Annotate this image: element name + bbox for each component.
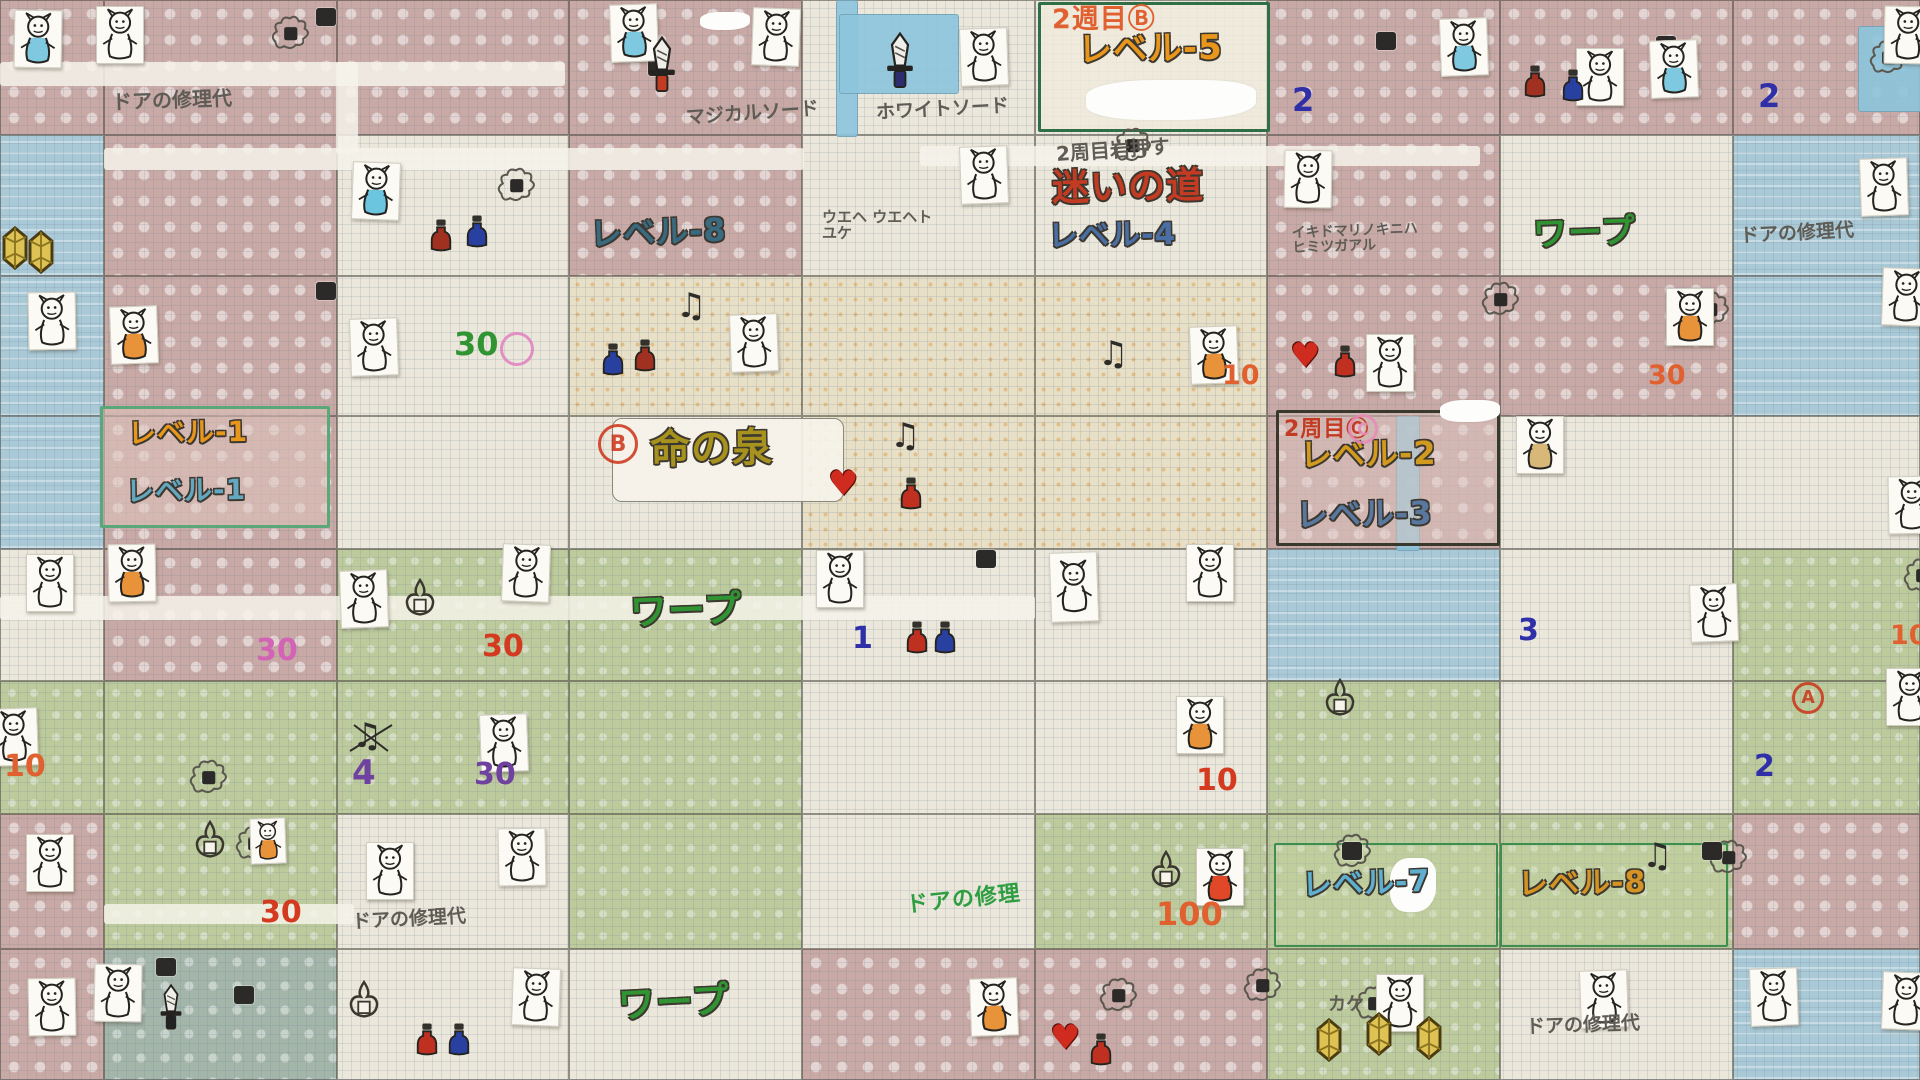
fire-icon <box>1148 850 1184 894</box>
monster-sticker <box>339 569 389 629</box>
potion-icon <box>900 476 922 514</box>
price-number: 30 <box>1648 362 1686 389</box>
screen-cell-r4c6 <box>1267 549 1500 681</box>
map-label: レベル-1 <box>126 475 247 506</box>
whiteout-patch <box>1086 80 1256 120</box>
screen-cell-r3c2 <box>337 416 569 549</box>
crystal-icon <box>1314 1018 1344 1066</box>
potion-icon <box>430 218 452 256</box>
screen-cell-r3c0 <box>0 416 104 549</box>
map-label: イキドマリノキニハ ヒミツガアル <box>1292 222 1419 256</box>
monster-sticker <box>1186 544 1234 602</box>
monster-sticker <box>26 554 74 612</box>
music-note-icon: ♫ <box>1642 836 1672 876</box>
fire-icon <box>1322 678 1358 722</box>
magical-sword <box>646 36 678 98</box>
price-number: 30 <box>260 898 302 928</box>
screen-cell-r2c4 <box>802 276 1035 416</box>
monster-sticker <box>1283 150 1332 209</box>
monster-sticker <box>27 292 76 351</box>
potion-icon <box>448 1022 470 1060</box>
hand-drawn-overworld-map: ♫♫♫♫♫♥♥♥ ドアの修理代マジカルソードホワイトソード2週目Ⓑレベル-522… <box>0 0 1920 1080</box>
price-number: 2 <box>1754 752 1775 782</box>
screen-cell-r7c5 <box>1035 949 1267 1080</box>
map-label: ウエヘ ウエヘト ユケ <box>822 210 932 242</box>
map-label: レベル-3 <box>1296 497 1433 533</box>
monster-sticker <box>249 817 287 864</box>
price-number: 30 <box>454 328 499 360</box>
stamp-circle: A <box>1792 682 1824 714</box>
monster-sticker <box>26 834 74 892</box>
dungeon-door <box>234 986 254 1004</box>
heart-container-icon: ♥ <box>1290 336 1320 376</box>
monster-sticker <box>1689 583 1739 643</box>
monster-sticker <box>1516 416 1564 474</box>
map-label: レベル-5 <box>1078 31 1223 69</box>
stamp-circle: B <box>598 424 638 464</box>
crystal-icon <box>1364 1012 1394 1060</box>
monster-sticker <box>959 145 1009 205</box>
price-number: 10 <box>1222 362 1260 389</box>
price-number: 100 <box>1156 898 1223 930</box>
monster-sticker <box>511 967 561 1027</box>
screen-cell-r5c4 <box>802 681 1035 814</box>
white-sword <box>884 32 916 94</box>
monster-sticker <box>1439 17 1489 77</box>
dungeon-door <box>316 282 336 300</box>
path-band <box>104 904 354 924</box>
monster-sticker <box>107 544 156 603</box>
monster-sticker <box>96 6 144 64</box>
potion-icon <box>906 620 928 658</box>
map-label: レベル-8 <box>1518 867 1647 901</box>
screen-cell-r1c7 <box>1500 135 1733 276</box>
monster-sticker <box>349 317 399 377</box>
potion-icon <box>1334 344 1356 382</box>
map-label: カケ <box>1328 996 1364 1015</box>
monster-sticker <box>1881 267 1920 327</box>
map-label: 命の泉 <box>650 427 774 471</box>
music-note-icon: ♫ <box>676 286 706 326</box>
price-number: 10 <box>1890 622 1920 649</box>
potion-icon <box>1524 64 1546 102</box>
crystal-icon <box>26 230 56 278</box>
price-number: 30 <box>474 760 516 790</box>
price-number: 30 <box>482 632 524 662</box>
monster-sticker <box>1366 334 1414 392</box>
monster-sticker <box>351 161 401 221</box>
potion-icon <box>934 620 956 658</box>
crystal-icon <box>1414 1016 1444 1064</box>
price-number: 10 <box>4 752 46 782</box>
dungeon-door <box>156 958 176 976</box>
screen-cell-r4c8 <box>1733 549 1920 681</box>
price-number: 30 <box>256 636 298 666</box>
map-label: 2 <box>1292 84 1315 118</box>
price-number: 1 <box>852 624 873 654</box>
map-label: レベル-7 <box>1301 866 1430 902</box>
stamp-circle: C <box>1348 414 1378 444</box>
dungeon-door <box>316 8 336 26</box>
secret-cave-doodle <box>1096 976 1140 1018</box>
monster-sticker <box>27 978 76 1037</box>
secret-cave-doodle <box>1900 556 1920 598</box>
map-label: レベル-8 <box>589 214 727 252</box>
monster-sticker <box>969 977 1019 1037</box>
path-band <box>104 148 804 170</box>
map-label: レベル-4 <box>1048 219 1177 253</box>
path-band <box>336 62 358 154</box>
screen-cell-r5c7 <box>1500 681 1733 814</box>
map-label: 2 <box>1758 80 1781 114</box>
monster-sticker <box>1886 668 1920 726</box>
monster-sticker <box>1749 967 1799 1027</box>
dungeon-door <box>1342 842 1362 860</box>
secret-cave-doodle <box>1478 280 1522 322</box>
monster-sticker <box>1859 157 1909 217</box>
monster-sticker <box>1649 39 1699 99</box>
monster-sticker <box>497 828 546 887</box>
potion-icon <box>466 214 488 252</box>
monster-sticker <box>1887 476 1920 535</box>
monster-sticker <box>959 27 1009 87</box>
screen-cell-r6c3 <box>569 814 802 949</box>
price-number: 10 <box>1196 766 1238 796</box>
music-note-icon: ♫ <box>1098 334 1128 374</box>
monster-sticker <box>1883 6 1920 65</box>
screen-cell-r6c4 <box>802 814 1035 949</box>
monster-sticker <box>366 842 414 900</box>
monster-sticker <box>729 313 779 373</box>
fire-icon <box>402 578 438 622</box>
monster-sticker <box>93 964 142 1023</box>
monster-sticker <box>1666 288 1714 346</box>
secret-cave-doodle <box>1240 966 1284 1008</box>
screen-cell-r5c6 <box>1267 681 1500 814</box>
map-label: 迷いの道 <box>1052 167 1205 208</box>
screen-cell-r6c8 <box>1733 814 1920 949</box>
map-label: ドアの修理代 <box>1526 1014 1641 1038</box>
fire-icon <box>346 980 382 1024</box>
potion-icon <box>1090 1032 1112 1070</box>
price-number: 4 <box>352 756 376 790</box>
path-band <box>0 62 565 86</box>
map-label: ワープ <box>1532 214 1636 253</box>
secret-cave-doodle <box>186 758 230 800</box>
potion-icon <box>1562 68 1584 106</box>
dungeon-door <box>1702 842 1722 860</box>
monster-sticker <box>1176 696 1224 754</box>
monster-sticker <box>1881 971 1920 1031</box>
monster-sticker <box>501 543 551 603</box>
stamp-circle <box>500 332 534 366</box>
monster-sticker <box>109 305 159 365</box>
music-note-icon: ♫ <box>890 416 920 456</box>
monster-sticker <box>751 7 801 67</box>
dungeon-door <box>1376 32 1396 50</box>
fire-icon <box>192 820 228 864</box>
map-label: ドアの修理代 <box>112 88 233 113</box>
whiteout-patch <box>1440 400 1500 422</box>
potion-icon <box>634 338 656 376</box>
potion-icon <box>602 342 624 380</box>
map-label: レベル-1 <box>128 417 249 448</box>
secret-cave-doodle <box>268 14 312 56</box>
monster-sticker <box>1049 551 1099 623</box>
heart-container-icon: ♥ <box>1050 1018 1080 1058</box>
black-sword <box>158 984 184 1035</box>
price-number: 3 <box>1518 616 1539 646</box>
music-note-crossed-icon: ♫ <box>352 716 382 756</box>
map-label: ワープ <box>617 981 731 1026</box>
heart-container-icon: ♥ <box>828 464 858 504</box>
whiteout-patch <box>700 12 750 30</box>
screen-cell-r5c3 <box>569 681 802 814</box>
monster-sticker <box>816 550 864 608</box>
secret-cave-doodle <box>494 166 538 208</box>
potion-icon <box>416 1022 438 1060</box>
monster-sticker <box>13 10 62 69</box>
map-label: ワープ <box>629 590 742 633</box>
dungeon-door <box>976 550 996 568</box>
screen-cell-r3c5 <box>1035 416 1267 549</box>
